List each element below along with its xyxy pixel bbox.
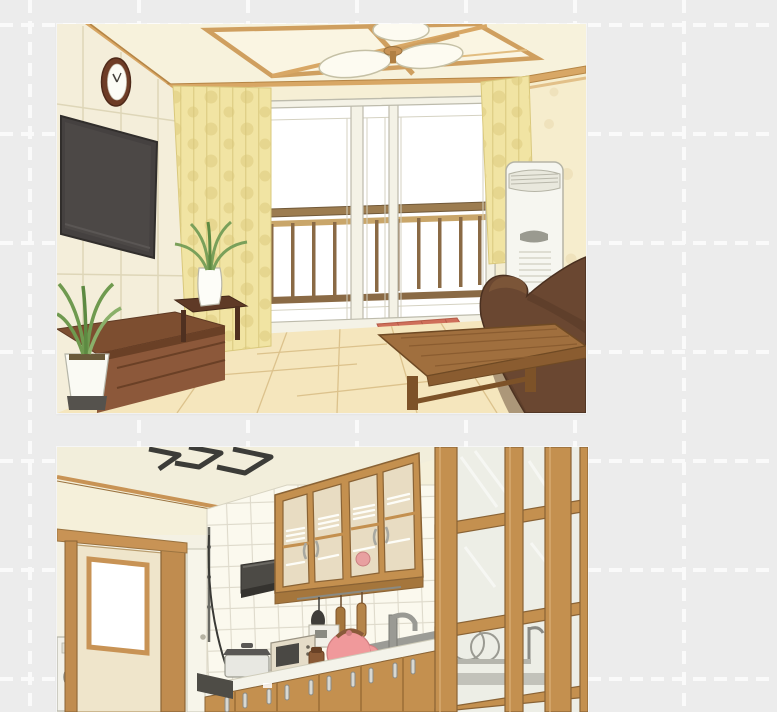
grid-line-vertical <box>28 0 32 712</box>
glass-paned-partition <box>435 447 588 712</box>
kitchen-art <box>57 447 588 712</box>
canvas-background <box>0 0 777 712</box>
partition-stile-right <box>545 447 571 712</box>
sliding-door-with-window <box>57 529 187 712</box>
wall-clock <box>102 58 131 106</box>
partition-edge <box>580 447 588 712</box>
wall-mounted-tv <box>61 116 157 258</box>
grid-line-vertical <box>682 0 686 712</box>
living-room-illustration[interactable] <box>57 24 586 413</box>
pink-bowl <box>356 552 370 566</box>
kitchen-illustration[interactable] <box>57 447 588 712</box>
white-vase <box>198 268 222 306</box>
living-room-art <box>57 24 586 413</box>
partition-stile-left <box>435 447 457 712</box>
partition-mullion <box>505 447 523 712</box>
door-window <box>89 559 147 653</box>
door-jamb <box>161 545 185 712</box>
